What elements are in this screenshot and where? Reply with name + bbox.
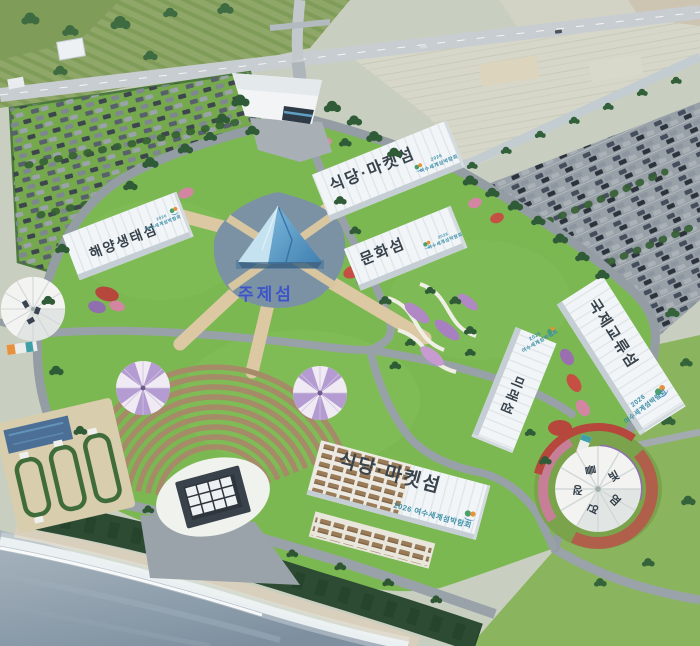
theme-island-label: 주제섬 (238, 285, 294, 304)
pinwheel-tent-west (116, 361, 170, 415)
expo-site-plan: 주제섬 (0, 0, 700, 646)
approach-road (297, 0, 300, 60)
dome-char: 정 (572, 483, 584, 498)
aerial-site-rendering: 주제섬 (0, 0, 700, 646)
dome-pavilion-right: 를 빛 염 연 정 (555, 446, 641, 532)
pinwheel-tent-east (293, 366, 347, 420)
